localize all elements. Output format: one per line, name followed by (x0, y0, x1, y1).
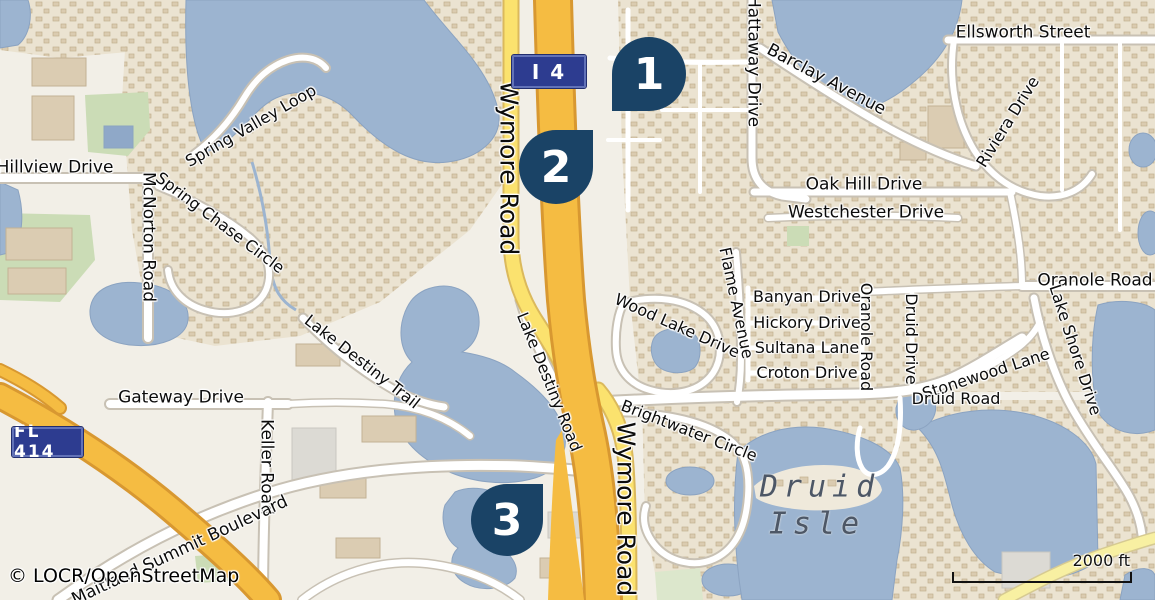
road-label: Hickory Drive (753, 315, 861, 331)
map-attribution: © LOCR/OpenStreetMap (8, 565, 239, 587)
map-canvas (0, 0, 1155, 600)
map-pin-1[interactable]: 1 (612, 37, 686, 111)
fl-414-shield: FL 414 (12, 427, 83, 457)
place-label-druid: Druid (760, 470, 880, 505)
scale-bar-line (952, 572, 1132, 583)
shield-label: FL 414 (14, 422, 81, 462)
road-label: Druid Drive (903, 293, 919, 384)
road-label: Gateway Drive (118, 390, 244, 407)
road-label: McNorton Road (140, 172, 157, 302)
road-label: Ellsworth Street (956, 25, 1091, 42)
map-viewport[interactable]: Hillview Drive McNorton Road Spring Vall… (0, 0, 1155, 600)
road-label: Banyan Drive (753, 289, 861, 305)
road-label: Oak Hill Drive (806, 177, 923, 194)
road-label: Wymore Road (497, 81, 522, 256)
pin-number: 2 (541, 142, 572, 193)
map-pin-2[interactable]: 2 (519, 130, 593, 204)
road-label: Hattaway Drive (745, 0, 762, 127)
road-label: Sultana Lane (755, 340, 860, 356)
road-label: Westchester Drive (788, 205, 944, 222)
place-label-isle: Isle (769, 507, 865, 542)
road-label: Wymore Road (614, 422, 639, 597)
map-pin-3[interactable]: 3 (471, 484, 543, 556)
road-label: Hillview Drive (0, 160, 113, 177)
scale-bar-label: 2000 ft (952, 551, 1132, 570)
pin-number: 3 (492, 495, 523, 546)
road-label: Croton Drive (756, 365, 857, 381)
road-label: Druid Road (912, 391, 1001, 407)
interstate-4-shield: I 4 (512, 55, 586, 88)
shield-label: I 4 (532, 60, 566, 84)
scale-bar: 2000 ft (952, 551, 1132, 583)
pin-number: 1 (634, 49, 665, 100)
